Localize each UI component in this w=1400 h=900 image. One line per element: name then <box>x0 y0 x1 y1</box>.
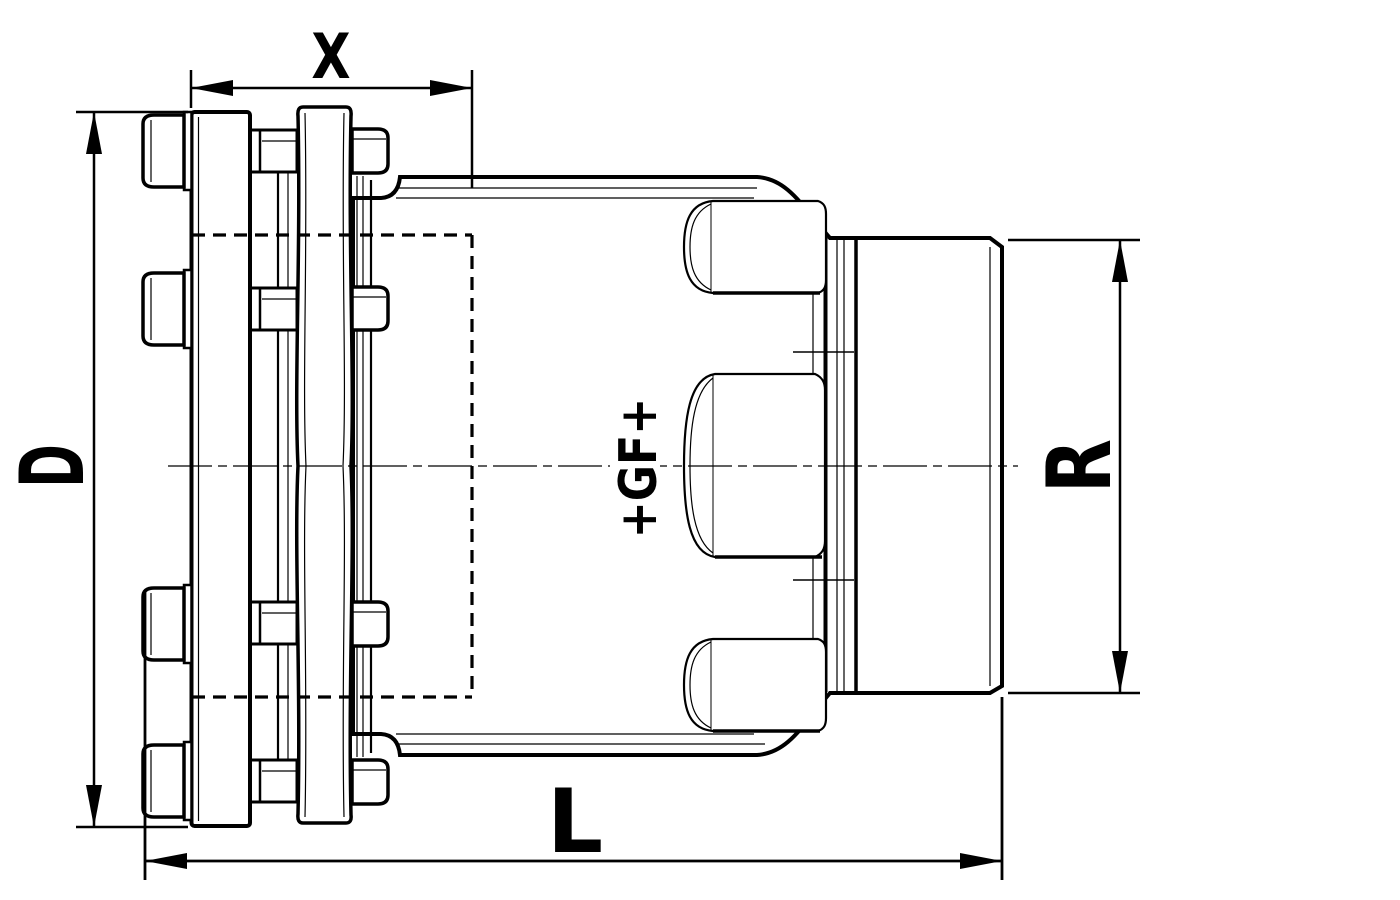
x-dimension-label: X <box>311 21 350 93</box>
head <box>143 588 184 660</box>
backing-flange-outline <box>297 107 353 823</box>
x-arrow-left-icon <box>191 80 233 96</box>
d-arrow-bottom-icon <box>86 785 102 827</box>
l-arrow-left-icon <box>145 853 187 869</box>
dimension-d: D <box>3 112 188 827</box>
backing-flange <box>297 107 353 823</box>
dimension-r: R <box>1008 240 1140 693</box>
bolt-3-head <box>143 585 192 663</box>
primary-flange <box>192 112 251 826</box>
head <box>143 273 184 345</box>
grip-lug-top <box>684 201 826 293</box>
grip-lug-bottom <box>684 639 826 731</box>
shaft-1 <box>250 130 297 172</box>
r-arrow-bottom-icon <box>1112 651 1128 693</box>
d-dimension-label: D <box>3 444 105 488</box>
shaft-2 <box>250 288 297 330</box>
nut-1 <box>352 129 388 173</box>
bolt-1-head <box>143 112 192 190</box>
logo-text: +GF+ <box>609 398 669 539</box>
head <box>143 745 184 817</box>
brand-logo: +GF+ <box>609 398 669 539</box>
x-arrow-right-icon <box>430 80 472 96</box>
nut-4 <box>352 760 388 804</box>
fitting-drawing: X D R L +GF+ <box>0 0 1400 900</box>
bolt-2-head <box>143 270 192 348</box>
shaft-3 <box>250 602 297 644</box>
r-dimension-label: R <box>1028 439 1131 493</box>
lug-outline <box>684 639 826 731</box>
l-dimension-label: L <box>547 770 603 873</box>
lug-outline <box>684 201 826 293</box>
primary-flange-outline <box>192 112 251 826</box>
nut-3 <box>352 602 388 646</box>
shaft-4 <box>250 760 297 802</box>
d-arrow-top-icon <box>86 112 102 154</box>
drawing-canvas: X D R L +GF+ <box>0 0 1400 900</box>
nut-2 <box>352 287 388 330</box>
head <box>143 115 184 187</box>
r-arrow-top-icon <box>1112 240 1128 282</box>
bolt-4-head <box>143 742 192 820</box>
l-arrow-right-icon <box>960 853 1002 869</box>
stub-end-lines <box>278 172 288 762</box>
